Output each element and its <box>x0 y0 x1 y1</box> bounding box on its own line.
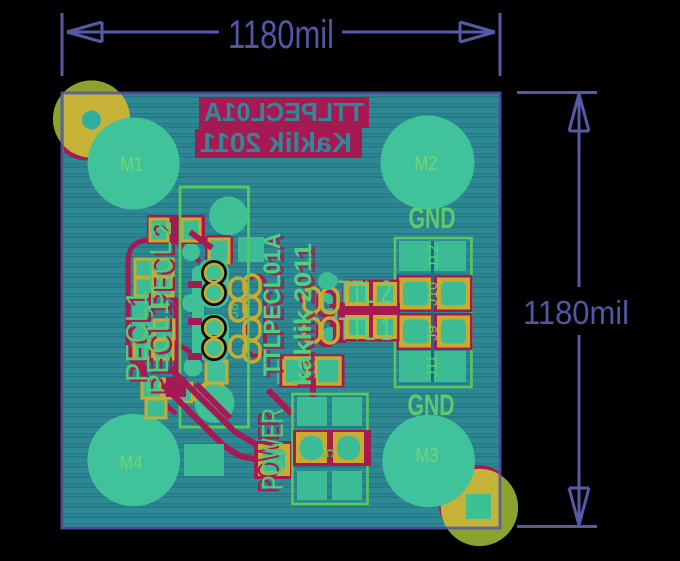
svg-text:J12: J12 <box>425 245 442 269</box>
svg-text:POWER: POWER <box>255 408 290 490</box>
svg-text:TTL 2: TTL 2 <box>338 274 392 310</box>
svg-text:1180mil: 1180mil <box>523 294 629 331</box>
svg-text:M3: M3 <box>416 445 439 467</box>
svg-text:M1: M1 <box>120 154 143 176</box>
svg-text:TTLPECL01A: TTLPECL01A <box>259 233 286 376</box>
svg-text:J10: J10 <box>424 282 441 306</box>
svg-text:TTL 1: TTL 1 <box>338 311 392 347</box>
svg-text:J8: J8 <box>225 303 241 318</box>
svg-text:GND: GND <box>408 389 455 422</box>
svg-text:Kaklik 2011: Kaklik 2011 <box>200 127 352 158</box>
svg-text:kaklik 2011: kaklik 2011 <box>290 243 317 386</box>
svg-text:PECL1: PECL1 <box>140 299 175 394</box>
svg-text:1180mil: 1180mil <box>228 13 334 57</box>
svg-text:5: 5 <box>319 449 338 458</box>
svg-text:GND: GND <box>409 202 456 235</box>
svg-text:J9: J9 <box>424 325 441 341</box>
svg-text:M2: M2 <box>415 153 438 175</box>
svg-text:TTLPECL01A: TTLPECL01A <box>204 97 364 127</box>
svg-text:M4: M4 <box>120 452 143 474</box>
svg-text:J11: J11 <box>424 355 441 378</box>
